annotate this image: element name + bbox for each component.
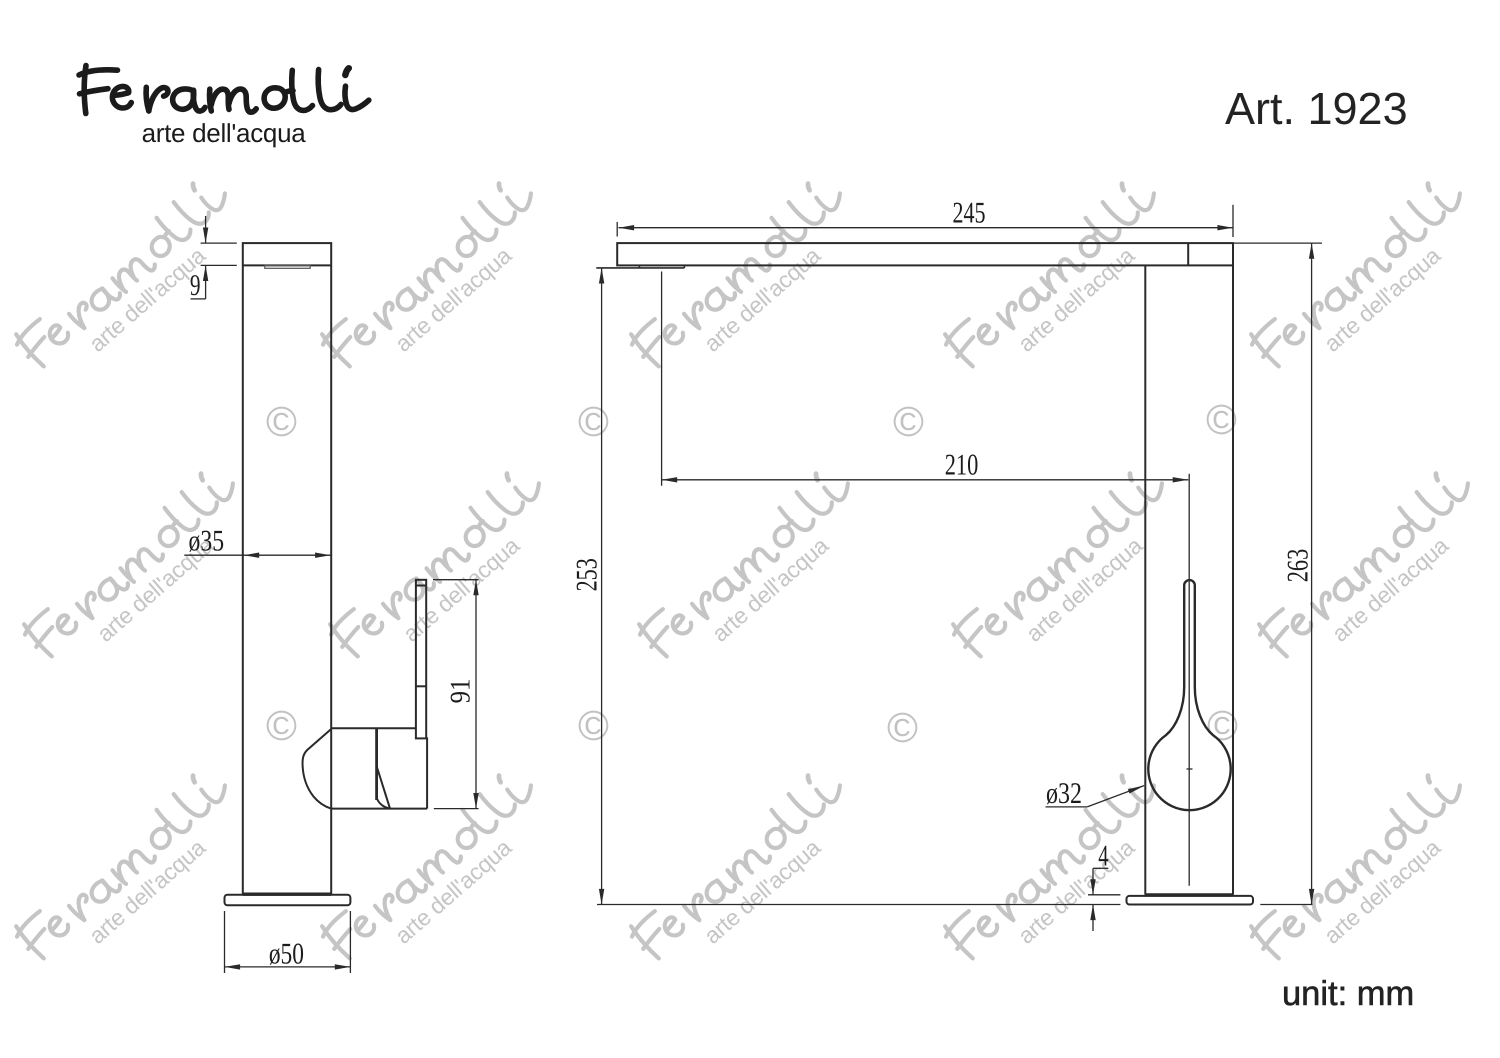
svg-text:263: 263 [1282, 549, 1315, 583]
svg-text:4: 4 [1098, 840, 1108, 873]
svg-text:9: 9 [190, 269, 201, 302]
svg-text:91: 91 [445, 679, 476, 704]
svg-text:ø32: ø32 [1046, 777, 1082, 810]
svg-text:ø50: ø50 [269, 938, 304, 971]
svg-text:253: 253 [571, 558, 604, 591]
svg-text:ø35: ø35 [189, 524, 225, 557]
svg-text:245: 245 [952, 197, 985, 230]
svg-text:210: 210 [945, 448, 979, 481]
